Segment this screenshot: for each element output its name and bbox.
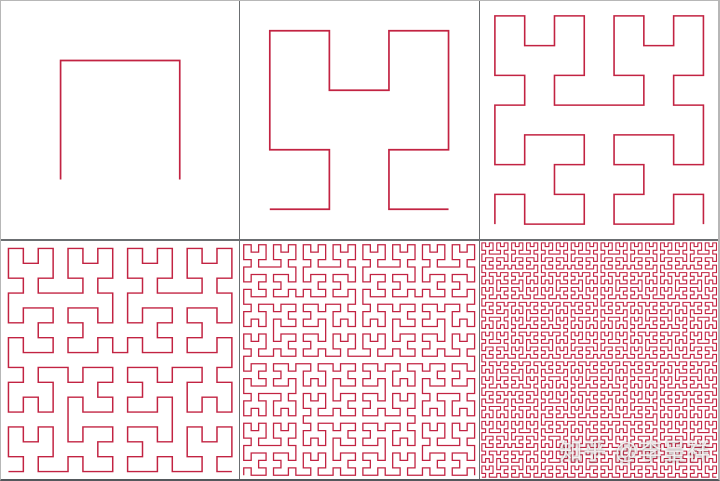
hilbert-curve-order-4 [8, 248, 231, 471]
figure-grid [1, 1, 718, 479]
hilbert-panel-order-4 [1, 241, 239, 479]
hilbert-curve-order-3 [495, 16, 704, 224]
hilbert-curve-order-1 [61, 61, 180, 180]
hilbert-curve-order-5 [244, 245, 475, 476]
hilbert-svg-order-6 [480, 241, 718, 479]
hilbert-panel-order-2 [240, 1, 478, 239]
hilbert-curve-order-6 [482, 243, 717, 477]
hilbert-curve-order-2 [270, 31, 449, 210]
hilbert-panel-order-6 [480, 241, 718, 479]
hilbert-svg-order-2 [240, 1, 478, 239]
hilbert-panel-order-5 [240, 241, 478, 479]
hilbert-svg-order-1 [1, 1, 239, 239]
hilbert-svg-order-5 [240, 241, 478, 479]
hilbert-svg-order-3 [480, 1, 718, 239]
hilbert-panel-order-3 [480, 1, 718, 239]
hilbert-svg-order-4 [1, 241, 239, 479]
hilbert-curve-figure: 知乎 @李呈祥 [0, 0, 720, 481]
hilbert-panel-order-1 [1, 1, 239, 239]
